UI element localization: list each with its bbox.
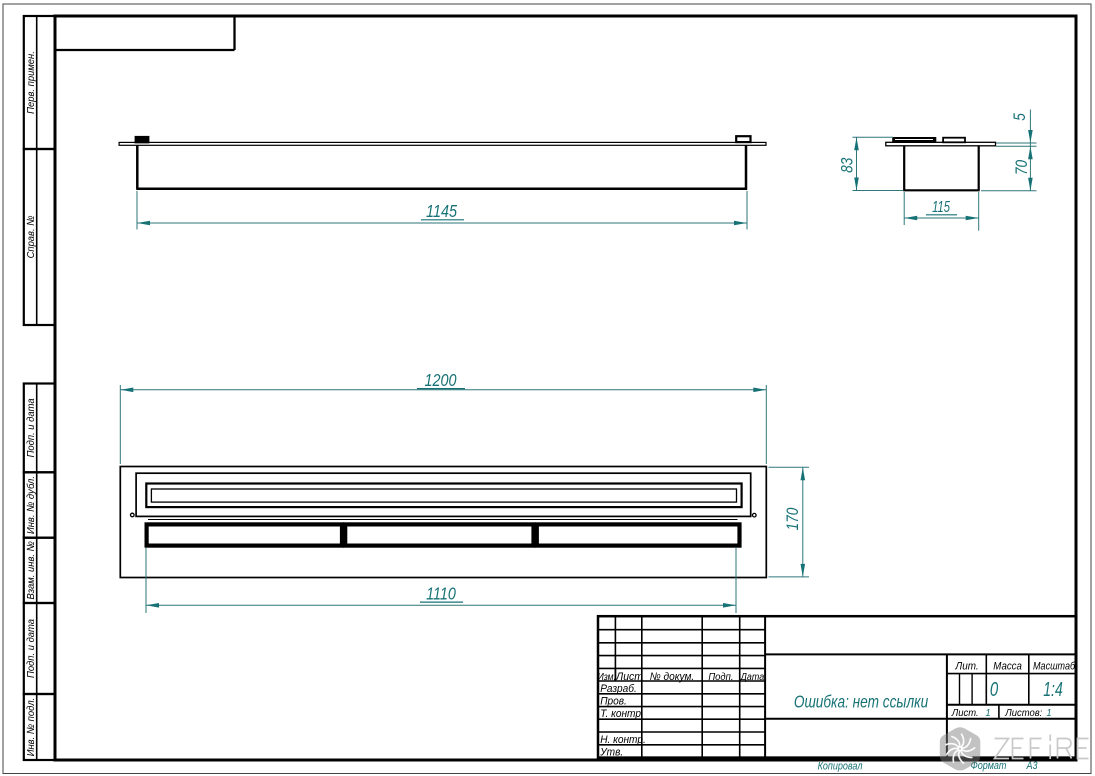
svg-text:83: 83 (838, 157, 857, 173)
svg-text:1145: 1145 (426, 202, 458, 222)
svg-text:Изм.: Изм. (598, 671, 616, 683)
svg-text:1: 1 (1046, 708, 1051, 720)
svg-text:А3: А3 (1026, 760, 1038, 772)
svg-text:0: 0 (990, 678, 998, 701)
svg-text:Дата: Дата (740, 671, 765, 683)
svg-text:Перв. примен.: Перв. примен. (26, 51, 38, 114)
svg-text:Лист: Лист (615, 671, 643, 683)
svg-text:1:4: 1:4 (1043, 677, 1062, 700)
svg-text:1: 1 (985, 708, 990, 720)
svg-text:Н. контр.: Н. контр. (600, 733, 646, 745)
svg-text:Лист.: Лист. (951, 708, 979, 720)
svg-text:Т. контр.: Т. контр. (600, 708, 644, 720)
svg-text:Масштаб: Масштаб (1033, 659, 1075, 672)
svg-text:Инв. № подл.: Инв. № подл. (26, 698, 38, 757)
svg-text:1200: 1200 (424, 371, 456, 391)
svg-text:Масса: Масса (993, 661, 1022, 673)
svg-text:5: 5 (1011, 113, 1030, 121)
svg-text:Ошибка: нет ссылки: Ошибка: нет ссылки (794, 693, 929, 712)
svg-text:115: 115 (932, 197, 950, 216)
svg-text:Пров.: Пров. (600, 695, 627, 707)
svg-text:Взам. инв. №: Взам. инв. № (26, 541, 38, 600)
svg-text:Подп. и дата: Подп. и дата (26, 619, 38, 678)
svg-text:Разраб.: Разраб. (600, 683, 637, 695)
svg-text:№ докум.: № докум. (650, 670, 694, 682)
svg-text:1110: 1110 (426, 584, 456, 604)
svg-text:170: 170 (784, 507, 803, 530)
svg-text:Справ. №: Справ. № (26, 215, 38, 258)
svg-text:Утв.: Утв. (599, 746, 623, 758)
svg-text:Подп.: Подп. (708, 671, 733, 683)
svg-text:Лит.: Лит. (954, 661, 978, 673)
svg-text:Копировал: Копировал (818, 761, 863, 773)
svg-text:Инв. № дубл.: Инв. № дубл. (26, 476, 38, 534)
svg-text:70: 70 (1013, 160, 1032, 176)
svg-text:Подп. и дата: Подп. и дата (26, 398, 38, 457)
svg-text:Листов:: Листов: (1004, 708, 1042, 720)
